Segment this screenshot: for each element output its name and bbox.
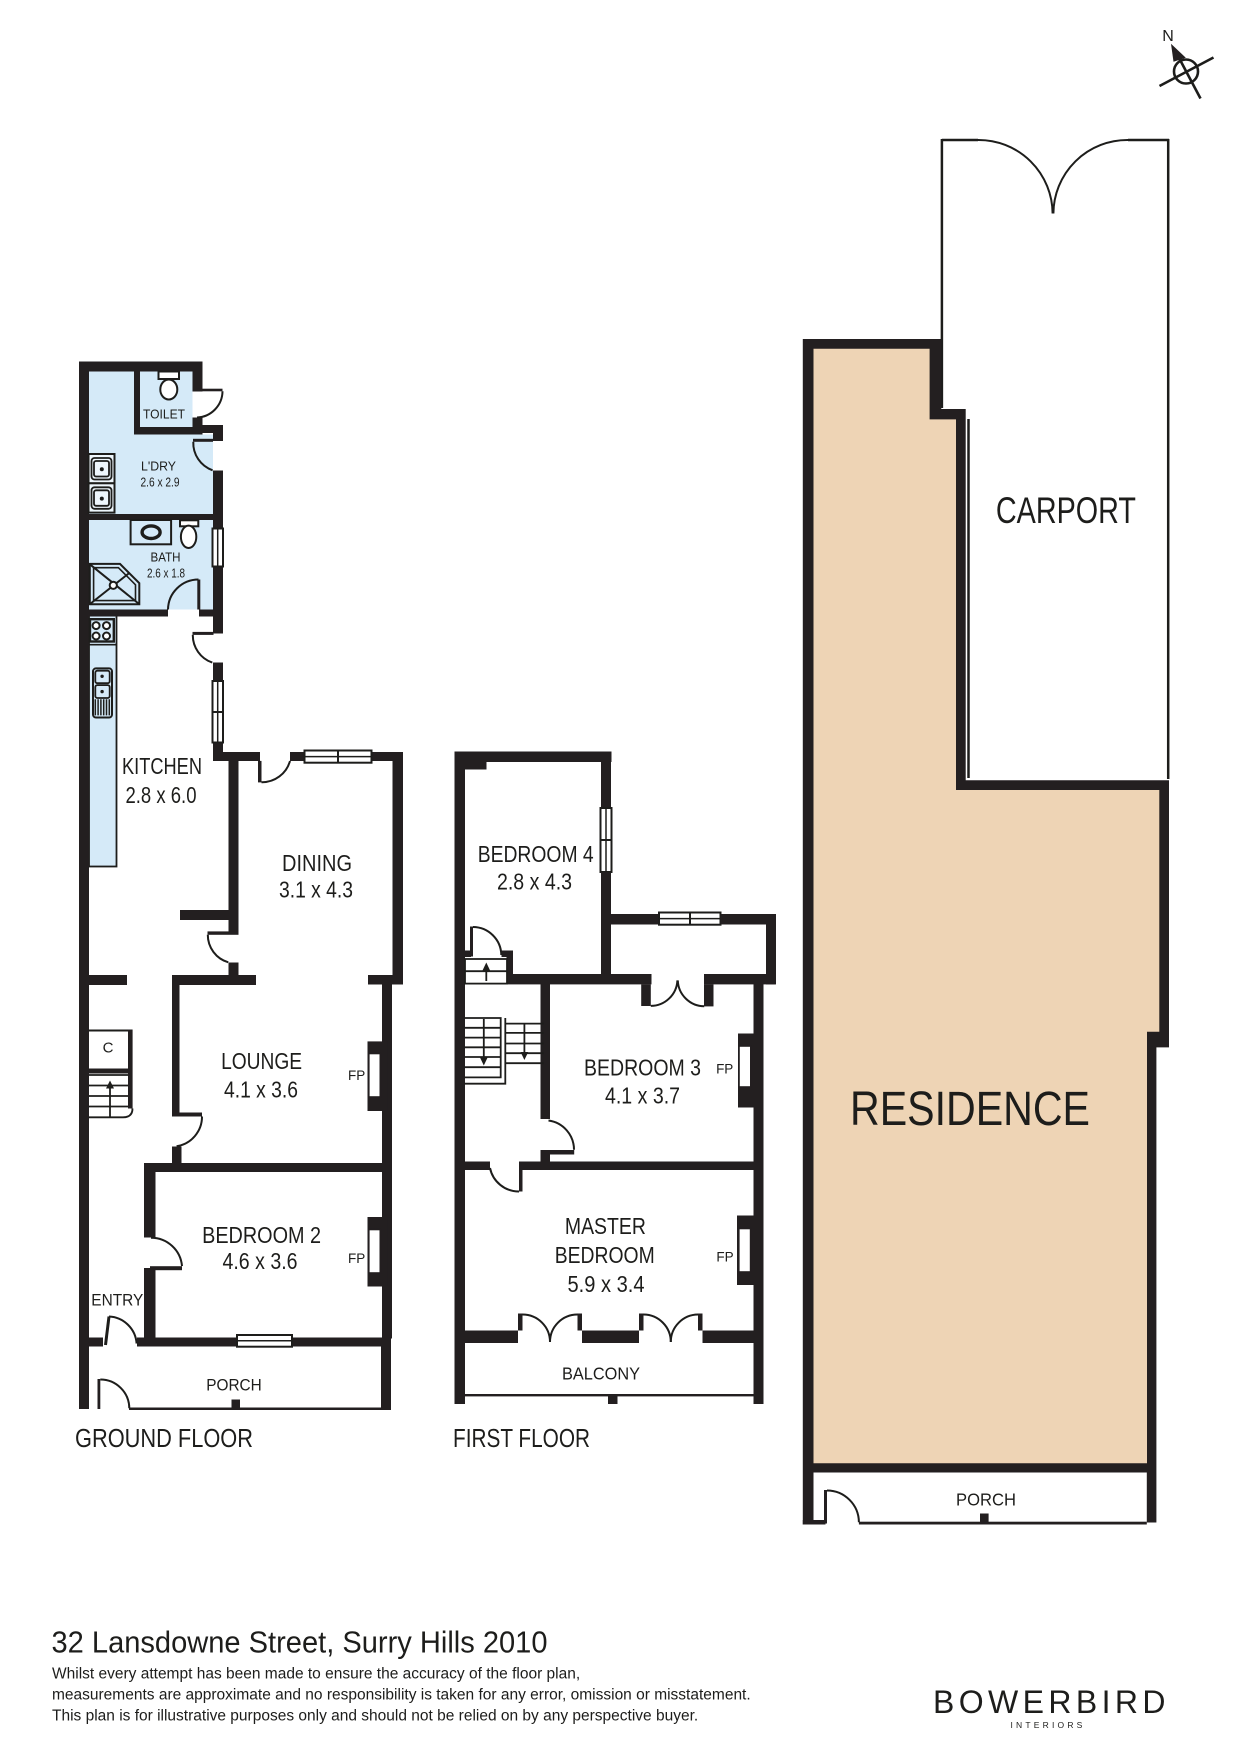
svg-text:BALCONY: BALCONY <box>562 1364 640 1384</box>
svg-text:DINING: DINING <box>282 850 352 876</box>
svg-text:FIRST FLOOR: FIRST FLOOR <box>453 1423 590 1453</box>
svg-text:LOUNGE: LOUNGE <box>221 1048 302 1074</box>
svg-text:MASTER: MASTER <box>565 1213 646 1239</box>
svg-text:N: N <box>1162 28 1174 45</box>
svg-text:32 Lansdowne Street, Surry Hil: 32 Lansdowne Street, Surry Hills 2010 <box>52 1625 548 1660</box>
svg-text:TOILET: TOILET <box>143 408 185 422</box>
svg-text:C: C <box>103 1040 114 1057</box>
svg-text:FP: FP <box>348 1251 365 1266</box>
svg-text:BEDROOM 2: BEDROOM 2 <box>202 1222 321 1248</box>
svg-text:BATH: BATH <box>151 551 181 565</box>
svg-text:BEDROOM 3: BEDROOM 3 <box>584 1055 701 1081</box>
svg-text:2.6 x 2.9: 2.6 x 2.9 <box>141 476 180 490</box>
svg-text:4.6 x 3.6: 4.6 x 3.6 <box>223 1248 298 1274</box>
svg-text:3.1 x 4.3: 3.1 x 4.3 <box>279 877 353 903</box>
svg-text:PORCH: PORCH <box>956 1490 1016 1510</box>
svg-text:PORCH: PORCH <box>206 1377 262 1395</box>
svg-text:FP: FP <box>716 1062 733 1077</box>
svg-text:CARPORT: CARPORT <box>996 490 1136 531</box>
svg-text:4.1 x 3.6: 4.1 x 3.6 <box>224 1077 298 1103</box>
svg-text:4.1 x 3.7: 4.1 x 3.7 <box>605 1083 680 1109</box>
svg-text:L'DRY: L'DRY <box>141 460 177 474</box>
svg-text:FP: FP <box>716 1250 733 1265</box>
svg-text:2.8 x 4.3: 2.8 x 4.3 <box>497 869 572 895</box>
svg-text:This plan is for illustrative: This plan is for illustrative purposes o… <box>52 1708 698 1725</box>
svg-text:BEDROOM 4: BEDROOM 4 <box>478 841 594 867</box>
svg-text:measurements are approximate a: measurements are approximate and no resp… <box>52 1687 751 1704</box>
svg-text:BOWERBIRD: BOWERBIRD <box>933 1684 1170 1720</box>
svg-text:KITCHEN: KITCHEN <box>122 753 202 779</box>
svg-text:BEDROOM: BEDROOM <box>555 1242 655 1268</box>
svg-text:2.6 x 1.8: 2.6 x 1.8 <box>147 567 185 581</box>
svg-text:2.8 x 6.0: 2.8 x 6.0 <box>126 782 197 808</box>
svg-text:ENTRY: ENTRY <box>91 1291 143 1310</box>
svg-text:Whilst every attempt has been: Whilst every attempt has been made to en… <box>52 1666 580 1683</box>
svg-text:GROUND FLOOR: GROUND FLOOR <box>75 1423 253 1453</box>
svg-text:RESIDENCE: RESIDENCE <box>850 1083 1090 1136</box>
svg-text:FP: FP <box>348 1068 365 1083</box>
svg-text:5.9 x 3.4: 5.9 x 3.4 <box>568 1271 645 1297</box>
svg-text:INTERIORS: INTERIORS <box>1010 1720 1085 1730</box>
